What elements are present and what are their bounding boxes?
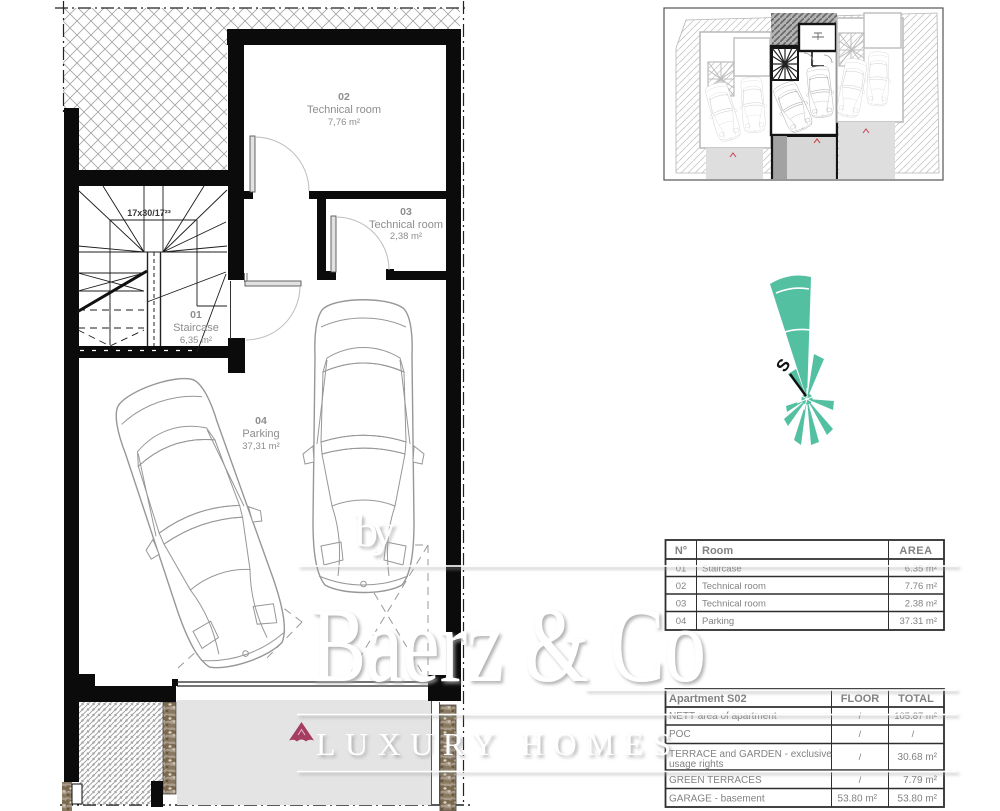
svg-text:TOTAL: TOTAL xyxy=(898,693,934,705)
svg-text:/: / xyxy=(859,729,862,740)
svg-text:Baerz & Co: Baerz & Co xyxy=(311,587,706,705)
svg-text:37,31 m²: 37,31 m² xyxy=(242,441,280,452)
svg-text:30.68 m²: 30.68 m² xyxy=(898,752,938,763)
svg-text:N°: N° xyxy=(675,545,687,557)
svg-text:/: / xyxy=(859,711,862,722)
svg-text:/: / xyxy=(912,729,915,740)
svg-text:6.35 m²: 6.35 m² xyxy=(905,564,937,575)
svg-text:7.76 m²: 7.76 m² xyxy=(905,581,937,592)
svg-text:/: / xyxy=(859,752,862,763)
svg-text:Parking: Parking xyxy=(242,428,279,440)
svg-text:Technical room: Technical room xyxy=(369,219,443,231)
svg-text:2,38 m²: 2,38 m² xyxy=(390,231,422,242)
svg-text:LUXURY HOMES: LUXURY HOMES xyxy=(316,726,680,762)
svg-text:/: / xyxy=(859,775,862,786)
svg-text:04: 04 xyxy=(255,415,267,427)
svg-text:GREEN TERRACES: GREEN TERRACES xyxy=(669,775,762,786)
svg-text:37.31 m²: 37.31 m² xyxy=(900,616,938,627)
svg-text:17x30/17²³: 17x30/17²³ xyxy=(127,208,171,218)
svg-text:53.80 m²: 53.80 m² xyxy=(898,794,938,805)
svg-text:03: 03 xyxy=(400,206,412,218)
svg-text:02: 02 xyxy=(338,91,350,103)
svg-text:GARAGE - basement: GARAGE - basement xyxy=(669,794,765,805)
svg-text:Staircase: Staircase xyxy=(702,564,742,575)
svg-text:Room: Room xyxy=(702,545,733,557)
svg-text:by: by xyxy=(355,505,395,556)
svg-text:01: 01 xyxy=(676,564,687,575)
svg-text:6,35 m²: 6,35 m² xyxy=(180,335,212,346)
svg-text:NETT area of apartment: NETT area of apartment xyxy=(669,711,777,722)
svg-text:53.80 m²: 53.80 m² xyxy=(838,794,878,805)
svg-text:AREA: AREA xyxy=(899,545,932,557)
svg-text:01: 01 xyxy=(190,309,202,321)
svg-text:Technical room: Technical room xyxy=(307,104,381,116)
svg-text:Technical room: Technical room xyxy=(702,581,766,592)
svg-text:Parking: Parking xyxy=(702,616,734,627)
svg-text:Staircase: Staircase xyxy=(173,322,219,334)
svg-text:7.79 m²: 7.79 m² xyxy=(903,775,938,786)
svg-text:2.38 m²: 2.38 m² xyxy=(905,599,937,610)
svg-text:7,76 m²: 7,76 m² xyxy=(328,117,360,128)
svg-text:Technical room: Technical room xyxy=(702,599,766,610)
svg-text:105.87 m²: 105.87 m² xyxy=(894,711,937,722)
svg-text:FLOOR: FLOOR xyxy=(841,693,880,705)
